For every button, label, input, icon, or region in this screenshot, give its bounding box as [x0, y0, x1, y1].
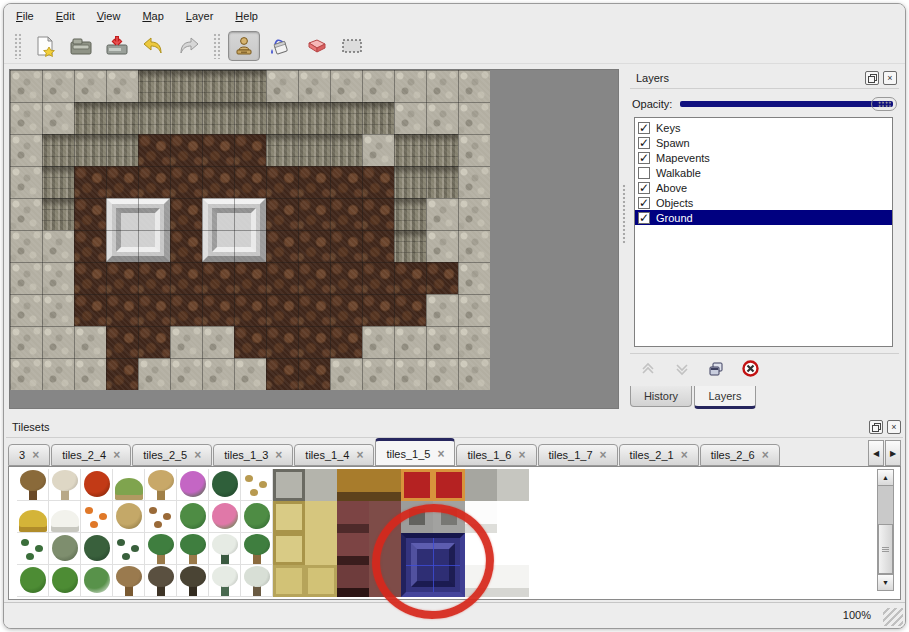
tileset-tab-tiles_1_6[interactable]: tiles_1_6× [456, 444, 536, 466]
tileset-tile[interactable] [273, 469, 305, 501]
map-tile[interactable] [394, 102, 426, 134]
redo-button[interactable] [173, 31, 205, 61]
duplicate-layer-button[interactable] [706, 359, 726, 379]
tileset-tile[interactable] [145, 469, 177, 501]
map-tile[interactable] [138, 358, 170, 390]
menu-bar: FileEditViewMapLayerHelp [4, 4, 905, 28]
tileset-tab-tiles_1_3[interactable]: tiles_1_3× [213, 444, 293, 466]
tileset-tile[interactable] [209, 501, 241, 533]
tileset-tab-label: tiles_2_6 [711, 449, 755, 461]
map-tile[interactable] [138, 294, 170, 326]
tileset-tile[interactable] [209, 533, 241, 565]
toolbar-drag-handle[interactable] [14, 33, 21, 59]
close-panel-icon[interactable]: × [887, 420, 901, 434]
tileset-tile[interactable] [369, 469, 401, 501]
tileset-tab-label: tiles_2_1 [630, 449, 674, 461]
map-tile[interactable] [298, 358, 330, 390]
map-canvas[interactable] [9, 69, 619, 409]
map-tile[interactable] [394, 70, 426, 102]
selection-rectangle-icon [340, 36, 364, 56]
scroll-down-icon[interactable]: ▼ [878, 574, 893, 590]
layer-row-ground[interactable]: ✓Ground [635, 210, 892, 225]
map-tile[interactable] [170, 134, 202, 166]
tileset-tab-tiles_1_7[interactable]: tiles_1_7× [538, 444, 618, 466]
tileset-tile[interactable] [145, 501, 177, 533]
map-tile[interactable] [106, 134, 138, 166]
map-tile[interactable] [330, 198, 362, 230]
tileset-tile[interactable] [177, 469, 209, 501]
map-tile[interactable] [426, 326, 458, 358]
tileset-tile[interactable] [273, 501, 305, 533]
map-tile[interactable] [362, 70, 394, 102]
tileset-tile[interactable] [305, 565, 337, 597]
layer-visibility-checkbox[interactable]: ✓ [638, 212, 650, 224]
map-tile[interactable] [458, 166, 490, 198]
map-tile[interactable] [458, 294, 490, 326]
map-tile[interactable] [298, 262, 330, 294]
map-tile[interactable] [394, 358, 426, 390]
map-tile[interactable] [394, 134, 426, 166]
map-tile[interactable] [202, 326, 234, 358]
save-map-button[interactable] [101, 31, 133, 61]
float-panel-icon[interactable] [865, 71, 879, 85]
map-tile[interactable] [10, 358, 42, 390]
map-tile[interactable] [426, 134, 458, 166]
map-tile[interactable] [106, 326, 138, 358]
tileset-tile[interactable] [49, 565, 81, 597]
tileset-tile[interactable] [465, 533, 497, 565]
layer-row-keys[interactable]: ✓Keys [635, 120, 892, 135]
tileset-tile[interactable] [369, 565, 401, 597]
opacity-slider-track [680, 101, 893, 107]
map-tile[interactable] [298, 198, 330, 230]
map-tile[interactable] [362, 198, 394, 230]
opacity-slider-thumb[interactable] [871, 97, 897, 111]
tileset-tile[interactable] [17, 565, 49, 597]
map-tile[interactable] [394, 230, 426, 262]
map-tile[interactable] [202, 102, 234, 134]
tileset-tile[interactable] [209, 565, 241, 597]
map-tile[interactable] [266, 358, 298, 390]
tileset-tile[interactable] [433, 501, 465, 533]
selected-blue-tile[interactable] [401, 533, 465, 597]
tileset-tile[interactable] [497, 533, 529, 565]
tileset-tile[interactable] [369, 501, 401, 533]
layer-visibility-checkbox[interactable]: ✓ [638, 122, 650, 134]
tileset-tab-tiles_2_5[interactable]: tiles_2_5× [132, 444, 212, 466]
tileset-tile[interactable] [337, 501, 369, 533]
map-tile[interactable] [138, 166, 170, 198]
map-tile[interactable] [234, 70, 266, 102]
map-tile[interactable] [106, 358, 138, 390]
layer-visibility-checkbox[interactable] [638, 167, 650, 179]
map-tile[interactable] [138, 70, 170, 102]
close-tab-icon[interactable]: × [762, 449, 769, 461]
layer-visibility-checkbox[interactable]: ✓ [638, 152, 650, 164]
map-tile[interactable] [458, 70, 490, 102]
layers-panel: Layers × Opacity: ✓Keys✓Spawn✓MapeventsW… [630, 69, 899, 386]
map-tile[interactable] [234, 358, 266, 390]
map-tile[interactable] [330, 70, 362, 102]
map-tile[interactable] [170, 358, 202, 390]
map-tile[interactable] [74, 166, 106, 198]
dock-tab-layers[interactable]: Layers [694, 386, 756, 409]
map-tile[interactable] [298, 102, 330, 134]
tileset-tile[interactable] [273, 565, 305, 597]
close-panel-icon[interactable]: × [883, 71, 897, 85]
map-tile[interactable] [234, 294, 266, 326]
map-tile[interactable] [74, 134, 106, 166]
layers-panel-title: Layers [636, 72, 669, 84]
map-tile[interactable] [298, 294, 330, 326]
undo-button[interactable] [137, 31, 169, 61]
map-tile[interactable] [362, 326, 394, 358]
close-tab-icon[interactable]: × [275, 449, 282, 461]
map-tile[interactable] [362, 230, 394, 262]
map-tile[interactable] [426, 70, 458, 102]
map-tile[interactable] [362, 294, 394, 326]
tileset-view[interactable]: ▲ ▼ [8, 466, 901, 600]
map-tile[interactable] [330, 262, 362, 294]
sprout-sprite [99, 513, 107, 520]
tileset-tile[interactable] [113, 565, 145, 597]
map-tile[interactable] [10, 326, 42, 358]
map-tile[interactable] [42, 198, 74, 230]
scroll-up-icon[interactable]: ▲ [878, 470, 893, 486]
menu-view[interactable]: View [97, 10, 121, 22]
map-tile[interactable] [138, 134, 170, 166]
map-tile[interactable] [42, 294, 74, 326]
map-tile[interactable] [298, 230, 330, 262]
close-tab-icon[interactable]: × [519, 449, 526, 461]
map-tile[interactable] [202, 166, 234, 198]
stamp-tool-button[interactable] [228, 31, 260, 61]
map-tile[interactable] [330, 358, 362, 390]
map-tile[interactable] [170, 102, 202, 134]
map-tile[interactable] [266, 294, 298, 326]
selection-grid-line [406, 565, 460, 566]
map-tile[interactable] [458, 358, 490, 390]
menu-layer[interactable]: Layer [186, 10, 214, 22]
tileset-tile[interactable] [305, 533, 337, 565]
menu-file[interactable]: File [16, 10, 34, 22]
tileset-tile[interactable] [49, 501, 81, 533]
map-tile[interactable] [458, 262, 490, 294]
map-tile[interactable] [362, 358, 394, 390]
save-icon [105, 35, 129, 57]
undo-arrow-icon [141, 35, 165, 57]
tree-sprite [148, 470, 174, 491]
tileset-tile[interactable] [401, 469, 433, 501]
tileset-tile[interactable] [177, 565, 209, 597]
close-tab-icon[interactable]: × [32, 449, 39, 461]
tileset-tile[interactable] [497, 565, 529, 597]
map-tile[interactable] [74, 230, 106, 262]
tileset-tile[interactable] [241, 565, 273, 597]
layer-visibility-checkbox[interactable]: ✓ [638, 182, 650, 194]
map-tile[interactable] [266, 70, 298, 102]
tileset-tile[interactable] [465, 565, 497, 597]
map-tile[interactable] [106, 102, 138, 134]
vertical-splitter[interactable] [620, 69, 629, 409]
map-tile[interactable] [10, 262, 42, 294]
open-map-button[interactable] [65, 31, 97, 61]
tileset-tile[interactable] [81, 501, 113, 533]
pedestal-tile[interactable] [106, 198, 170, 262]
map-tile[interactable] [74, 294, 106, 326]
tileset-tile[interactable] [241, 533, 273, 565]
map-tile[interactable] [170, 166, 202, 198]
map-tile[interactable] [266, 230, 298, 262]
map-tile[interactable] [202, 134, 234, 166]
tileset-tab-tiles_2_4[interactable]: tiles_2_4× [51, 444, 131, 466]
map-tile[interactable] [234, 134, 266, 166]
tileset-tile[interactable] [209, 469, 241, 501]
layer-visibility-checkbox[interactable]: ✓ [638, 137, 650, 149]
tileset-scrollbar[interactable]: ▲ ▼ [877, 469, 894, 591]
layer-row-walkable[interactable]: Walkable [635, 165, 892, 180]
map-tile[interactable] [266, 262, 298, 294]
map-tile[interactable] [202, 262, 234, 294]
menu-edit[interactable]: Edit [56, 10, 75, 22]
map-tile[interactable] [42, 230, 74, 262]
map-tile[interactable] [170, 230, 202, 262]
tileset-tile[interactable] [497, 501, 529, 533]
tileset-tile[interactable] [177, 533, 209, 565]
map-tile[interactable] [106, 70, 138, 102]
tileset-tile[interactable] [369, 533, 401, 565]
map-tile[interactable] [10, 166, 42, 198]
map-tile[interactable] [426, 262, 458, 294]
map-tile[interactable] [42, 102, 74, 134]
pedestal-tile[interactable] [202, 198, 266, 262]
tileset-tile[interactable] [337, 565, 369, 597]
map-tile[interactable] [330, 294, 362, 326]
tileset-tile[interactable] [113, 469, 145, 501]
tileset-tile[interactable] [337, 533, 369, 565]
float-panel-icon[interactable] [869, 420, 883, 434]
map-tile[interactable] [458, 326, 490, 358]
tileset-tile[interactable] [49, 469, 81, 501]
map-tile[interactable] [458, 230, 490, 262]
map-tile[interactable] [394, 326, 426, 358]
tileset-tile[interactable] [81, 469, 113, 501]
move-layer-up-button[interactable] [638, 359, 658, 379]
map-tile[interactable] [330, 102, 362, 134]
map-tile[interactable] [394, 262, 426, 294]
map-tile[interactable] [426, 294, 458, 326]
tileset-tile[interactable] [337, 469, 369, 501]
layer-row-mapevents[interactable]: ✓Mapevents [635, 150, 892, 165]
map-tile[interactable] [202, 358, 234, 390]
map-tile[interactable] [170, 262, 202, 294]
map-tile[interactable] [74, 70, 106, 102]
close-tab-icon[interactable]: × [194, 449, 201, 461]
map-tile[interactable] [458, 198, 490, 230]
map-tile[interactable] [74, 198, 106, 230]
map-tile[interactable] [362, 262, 394, 294]
map-tile[interactable] [234, 102, 266, 134]
map-tile[interactable] [330, 230, 362, 262]
map-tile[interactable] [74, 326, 106, 358]
map-tile[interactable] [426, 230, 458, 262]
map-tile[interactable] [426, 166, 458, 198]
map-tile[interactable] [106, 262, 138, 294]
map-tile[interactable] [42, 358, 74, 390]
map-tile[interactable] [298, 70, 330, 102]
tileset-tab-tiles_2_6[interactable]: tiles_2_6× [700, 444, 780, 466]
scroll-tabs-right-button[interactable]: ▶ [885, 440, 901, 466]
map-tile[interactable] [362, 166, 394, 198]
layer-row-objects[interactable]: ✓Objects [635, 195, 892, 210]
dock-tab-history[interactable]: History [630, 386, 692, 407]
close-tab-icon[interactable]: × [437, 448, 444, 460]
tileset-tile[interactable] [113, 501, 145, 533]
map-tile[interactable] [42, 166, 74, 198]
plant-sprite [84, 471, 110, 497]
close-tab-icon[interactable]: × [356, 449, 363, 461]
map-tile[interactable] [42, 326, 74, 358]
map-tile[interactable] [266, 102, 298, 134]
tileset-tile[interactable] [49, 533, 81, 565]
move-layer-down-button[interactable] [672, 359, 692, 379]
map-tile[interactable] [10, 102, 42, 134]
tileset-tab-3[interactable]: 3× [8, 444, 50, 466]
map-tile[interactable] [138, 262, 170, 294]
map-tile[interactable] [394, 294, 426, 326]
tileset-tile[interactable] [305, 469, 337, 501]
map-tile[interactable] [394, 198, 426, 230]
mound-sprite [51, 510, 79, 532]
tileset-tab-label: tiles_1_4 [305, 449, 349, 461]
redo-arrow-icon [177, 35, 201, 57]
map-tile[interactable] [330, 134, 362, 166]
map-tile[interactable] [362, 102, 394, 134]
map-tile[interactable] [458, 102, 490, 134]
tileset-tile[interactable] [465, 469, 497, 501]
map-tile[interactable] [266, 198, 298, 230]
tileset-tile[interactable] [81, 565, 113, 597]
map-tile[interactable] [74, 358, 106, 390]
map-tile[interactable] [330, 326, 362, 358]
map-tile[interactable] [266, 134, 298, 166]
tileset-tile[interactable] [305, 501, 337, 533]
stamp-icon [233, 35, 255, 57]
tree-sprite [180, 566, 206, 587]
opacity-slider[interactable] [680, 96, 897, 112]
layer-row-spawn[interactable]: ✓Spawn [635, 135, 892, 150]
tileset-tile[interactable] [401, 501, 433, 533]
map-tile[interactable] [170, 70, 202, 102]
map-tile[interactable] [138, 102, 170, 134]
map-tile[interactable] [362, 134, 394, 166]
map-tile[interactable] [266, 166, 298, 198]
map-tile[interactable] [10, 294, 42, 326]
layers-panel-titlebar: Layers × [630, 69, 899, 89]
scroll-tabs-left-button[interactable]: ◀ [868, 440, 884, 466]
close-tab-icon[interactable]: × [681, 449, 688, 461]
select-tool-button[interactable] [336, 31, 368, 61]
tileset-tab-tiles_1_5[interactable]: tiles_1_5× [375, 438, 455, 466]
tileset-tab-label: tiles_2_5 [143, 449, 187, 461]
map-tile[interactable] [426, 198, 458, 230]
map-tile[interactable] [10, 70, 42, 102]
map-tile[interactable] [394, 166, 426, 198]
tileset-tab-tiles_2_1[interactable]: tiles_2_1× [619, 444, 699, 466]
tileset-tile[interactable] [145, 565, 177, 597]
map-tile[interactable] [106, 166, 138, 198]
new-map-button[interactable] [29, 31, 61, 61]
map-tile[interactable] [74, 102, 106, 134]
map-tile[interactable] [170, 198, 202, 230]
map-tile[interactable] [106, 294, 138, 326]
map-tile[interactable] [10, 198, 42, 230]
map-tile[interactable] [298, 166, 330, 198]
close-tab-icon[interactable]: × [600, 449, 607, 461]
tileset-tile[interactable] [241, 469, 273, 501]
tileset-tile[interactable] [497, 469, 529, 501]
map-tile[interactable] [42, 262, 74, 294]
tileset-tile[interactable] [81, 533, 113, 565]
map-tile[interactable] [234, 326, 266, 358]
tileset-tile[interactable] [113, 533, 145, 565]
map-tile[interactable] [170, 326, 202, 358]
resize-grip[interactable] [883, 608, 903, 626]
map-tile[interactable] [298, 134, 330, 166]
map-tile[interactable] [74, 262, 106, 294]
tileset-tile[interactable] [145, 533, 177, 565]
map-tile[interactable] [170, 294, 202, 326]
layer-label: Above [656, 182, 687, 194]
tileset-tile[interactable] [465, 501, 497, 533]
map-tile[interactable] [138, 326, 170, 358]
map-tile[interactable] [202, 70, 234, 102]
map-tile[interactable] [266, 326, 298, 358]
tileset-tile[interactable] [241, 501, 273, 533]
tileset-tab-label: tiles_1_3 [224, 449, 268, 461]
layer-visibility-checkbox[interactable]: ✓ [638, 197, 650, 209]
eraser-tool-button[interactable] [300, 31, 332, 61]
fill-tool-button[interactable] [264, 31, 296, 61]
map-tile[interactable] [10, 230, 42, 262]
map-tile[interactable] [42, 134, 74, 166]
delete-layer-button[interactable] [740, 359, 760, 379]
map-tile[interactable] [202, 294, 234, 326]
map-tile[interactable] [42, 70, 74, 102]
tree-sprite [20, 470, 46, 491]
map-tile[interactable] [10, 134, 42, 166]
tileset-tile[interactable] [17, 469, 49, 501]
menu-help[interactable]: Help [235, 10, 258, 22]
tileset-tab-tiles_1_4[interactable]: tiles_1_4× [294, 444, 374, 466]
layer-row-above[interactable]: ✓Above [635, 180, 892, 195]
map-tile[interactable] [234, 166, 266, 198]
tileset-tile[interactable] [273, 533, 305, 565]
map-tile[interactable] [330, 166, 362, 198]
scrollbar-thumb[interactable] [878, 524, 893, 574]
tileset-tile[interactable] [177, 501, 209, 533]
close-tab-icon[interactable]: × [113, 449, 120, 461]
tileset-tile[interactable] [17, 533, 49, 565]
tileset-tile[interactable] [17, 501, 49, 533]
map-tile[interactable] [426, 102, 458, 134]
map-tile[interactable] [426, 358, 458, 390]
map-tile[interactable] [234, 262, 266, 294]
map-tile[interactable] [298, 326, 330, 358]
menu-map[interactable]: Map [142, 10, 163, 22]
map-tile[interactable] [458, 134, 490, 166]
tileset-tile[interactable] [433, 469, 465, 501]
